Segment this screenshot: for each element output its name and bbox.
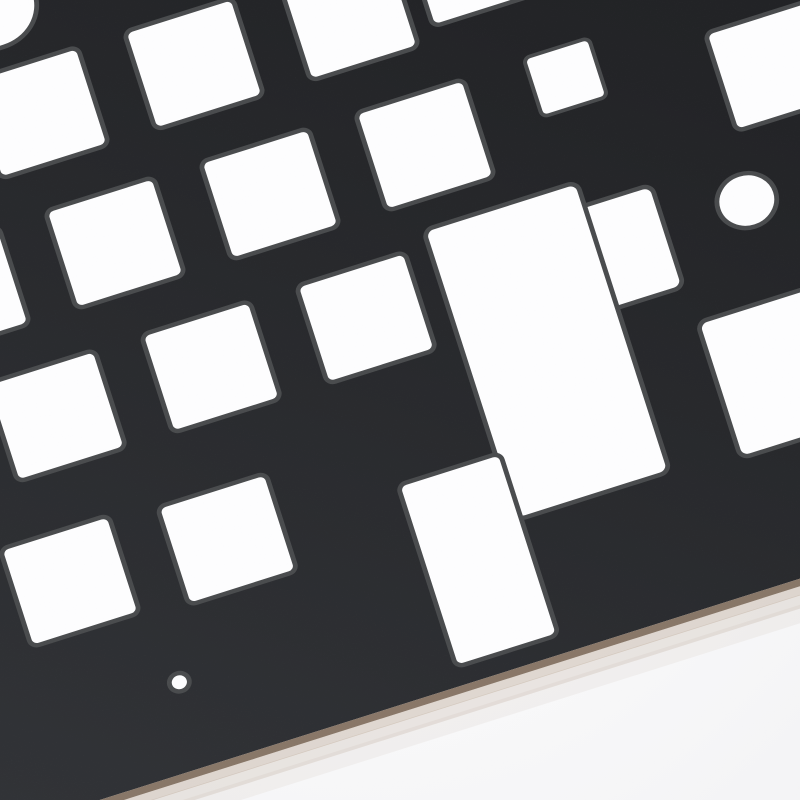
keyboard-plate-photo — [0, 0, 800, 800]
photo-stage — [0, 0, 800, 800]
